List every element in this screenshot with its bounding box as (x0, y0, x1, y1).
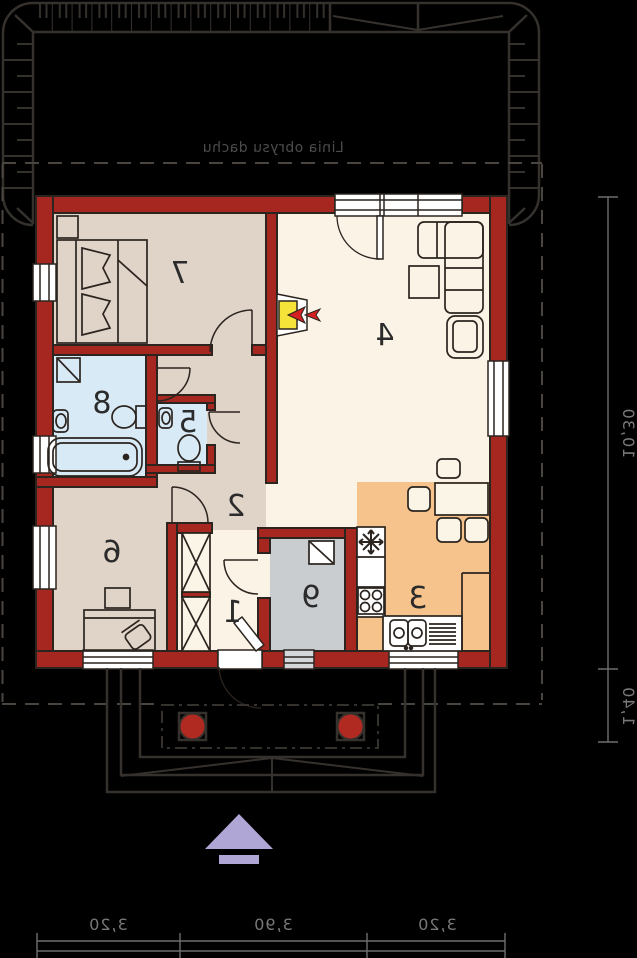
porch (107, 668, 435, 792)
roof-tile-pattern (33, 3, 330, 32)
room-label-3: 3 (408, 581, 427, 616)
room-label-7: 7 (170, 256, 189, 291)
room-label-2: 2 (226, 489, 245, 524)
dim-bottom-3: 3,20 (417, 915, 457, 934)
entrance-arrow-icon (205, 814, 273, 864)
floor-plan-svg: Linia obrysu dachu (0, 0, 637, 958)
room-label-1: 1 (223, 595, 242, 630)
roof-left-pattern (3, 36, 33, 192)
window-room6-bottom (83, 650, 153, 669)
porch-column-left (179, 713, 206, 740)
room-label-6: 6 (102, 535, 121, 570)
dimension-right (598, 197, 618, 742)
terrace-door-leaf (377, 216, 383, 259)
room-label-5: 5 (178, 405, 197, 440)
window-kitchen (389, 650, 458, 669)
entrance-door-swing-arc (219, 667, 261, 708)
room-label-8: 8 (92, 386, 111, 421)
floor-plan-canvas: Linia obrysu dachu (0, 0, 637, 958)
window-utility (284, 650, 314, 669)
room-label-4: 4 (375, 318, 394, 353)
roof-outline-label: Linia obrysu dachu (202, 140, 344, 156)
hob-icon (358, 588, 384, 614)
dimension-bottom (37, 933, 505, 958)
wardrobe-x-icon (182, 533, 210, 651)
room-label-9: 9 (301, 580, 320, 615)
dim-right-height: 10,30 (619, 408, 637, 459)
window-living-right (488, 361, 509, 436)
dimension-right-labels: 10,30 1,40 (619, 408, 637, 726)
dim-right-porch: 1,40 (619, 686, 637, 726)
dim-bottom-2: 3,90 (253, 915, 293, 934)
window-bedroom7 (33, 264, 56, 301)
dim-bottom-1: 3,20 (88, 915, 128, 934)
dimension-bottom-labels: 3,20 3,90 3,20 (88, 915, 457, 934)
window-room6-left (33, 526, 56, 589)
utility-washer-icon (309, 541, 334, 564)
porch-column-right (337, 713, 364, 740)
roof-right-pattern (509, 36, 539, 192)
roof-band (3, 3, 539, 225)
